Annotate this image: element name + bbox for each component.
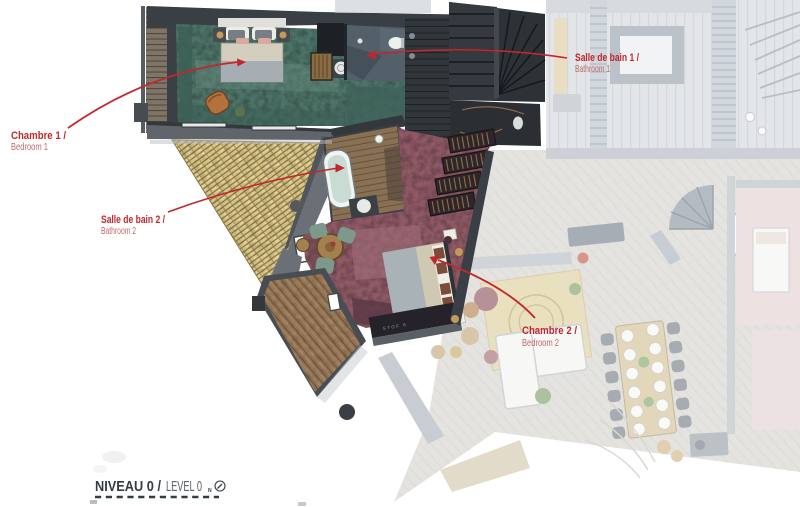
svg-text:LEVEL 0: LEVEL 0 bbox=[166, 478, 202, 495]
svg-text:Bathroom 1: Bathroom 1 bbox=[575, 63, 610, 75]
svg-text:Chambre 2 /: Chambre 2 / bbox=[522, 325, 577, 337]
svg-text:Bedroom 2: Bedroom 2 bbox=[522, 337, 559, 349]
svg-text:NIVEAU 0 /: NIVEAU 0 / bbox=[95, 478, 162, 495]
svg-text:N: N bbox=[208, 488, 212, 494]
svg-text:Bathroom 2: Bathroom 2 bbox=[101, 225, 136, 237]
svg-text:Bedroom 1: Bedroom 1 bbox=[11, 141, 48, 153]
